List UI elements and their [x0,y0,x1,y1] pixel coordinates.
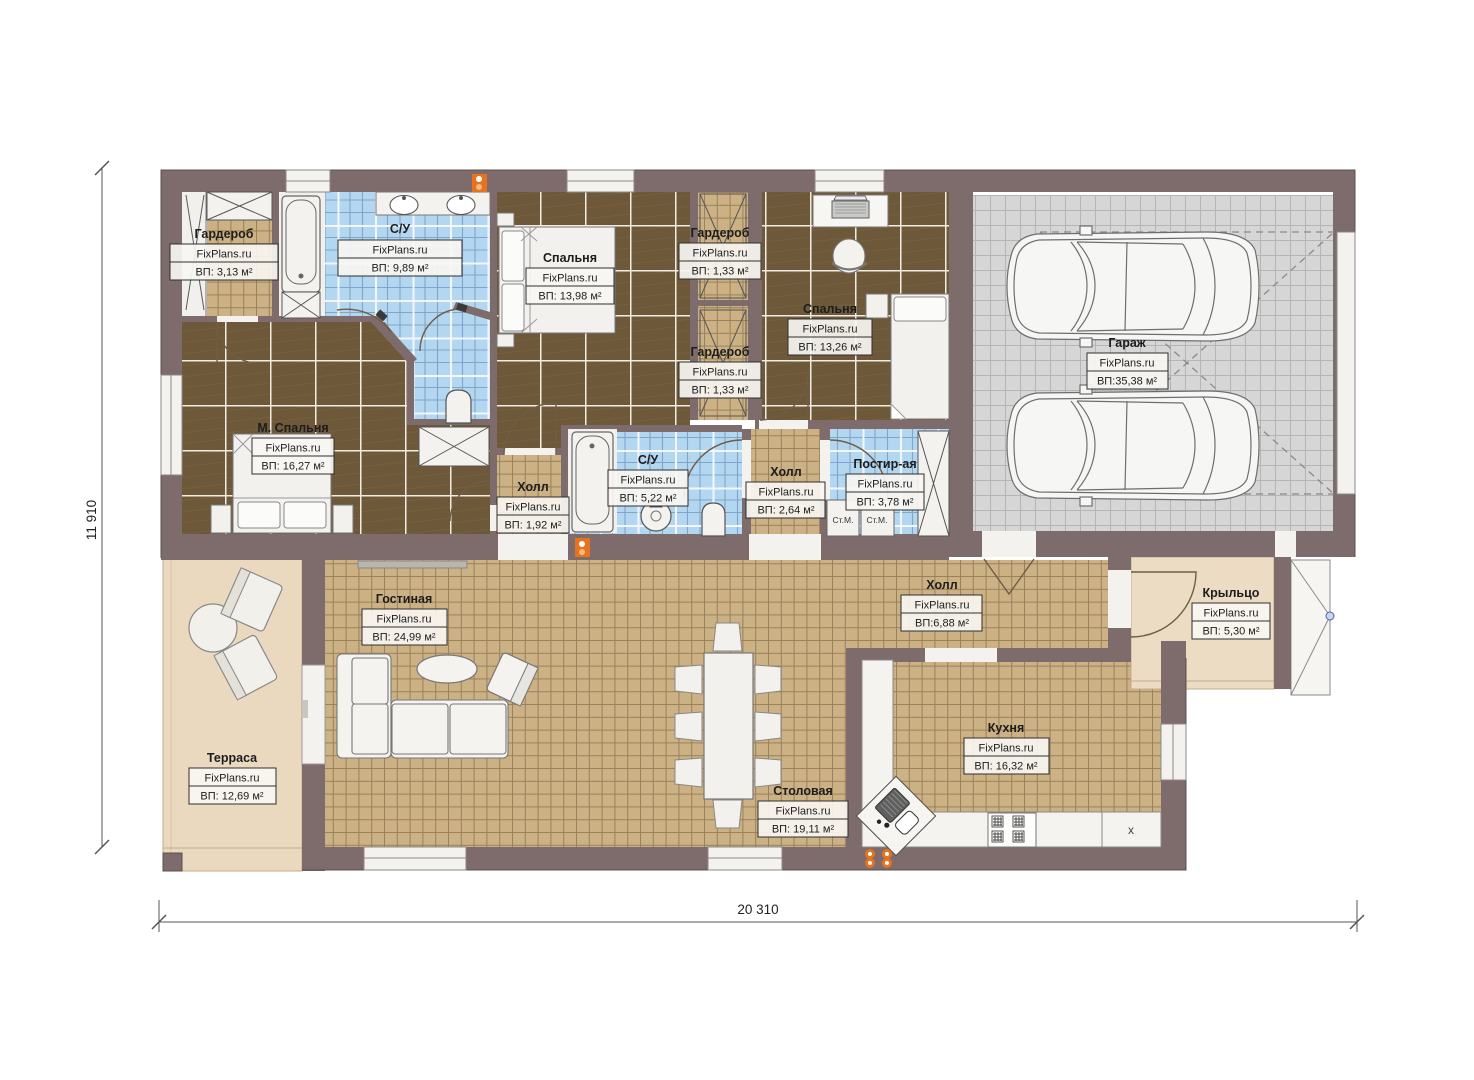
svg-text:Спальня: Спальня [803,302,857,316]
svg-text:Крыльцо: Крыльцо [1203,586,1260,600]
svg-text:ВП: 2,64 м²: ВП: 2,64 м² [757,505,814,517]
svg-text:FixPlans.ru: FixPlans.ru [857,479,912,491]
svg-text:ВП:35,38 м²: ВП:35,38 м² [1097,376,1157,388]
svg-text:Гардероб: Гардероб [690,345,749,359]
svg-text:Гараж: Гараж [1108,336,1145,350]
svg-text:ВП: 24,99 м²: ВП: 24,99 м² [372,632,436,644]
svg-text:FixPlans.ru: FixPlans.ru [196,249,251,261]
svg-text:ВП: 1,92 м²: ВП: 1,92 м² [504,520,561,532]
svg-text:ВП: 1,33 м²: ВП: 1,33 м² [691,266,748,278]
svg-text:Гардероб: Гардероб [690,226,749,240]
svg-text:Кухня: Кухня [988,721,1025,735]
svg-text:FixPlans.ru: FixPlans.ru [1099,358,1154,370]
svg-text:Спальня: Спальня [543,251,597,265]
svg-text:ВП: 12,69 м²: ВП: 12,69 м² [200,791,264,803]
svg-text:FixPlans.ru: FixPlans.ru [914,600,969,612]
svg-text:ВП: 5,30 м²: ВП: 5,30 м² [1202,626,1259,638]
svg-text:FixPlans.ru: FixPlans.ru [758,487,813,499]
svg-text:Постир-ая: Постир-ая [853,457,916,471]
svg-text:11 910: 11 910 [84,500,99,540]
svg-text:FixPlans.ru: FixPlans.ru [692,367,747,379]
svg-text:FixPlans.ru: FixPlans.ru [204,773,259,785]
svg-text:Гардероб: Гардероб [194,227,253,241]
svg-text:ВП: 1,33 м²: ВП: 1,33 м² [691,385,748,397]
svg-text:ВП: 3,13 м²: ВП: 3,13 м² [195,267,252,279]
svg-text:20 310: 20 310 [737,902,778,917]
svg-text:FixPlans.ru: FixPlans.ru [802,324,857,336]
svg-text:ВП: 16,32 м²: ВП: 16,32 м² [974,761,1038,773]
svg-text:Гостиная: Гостиная [376,592,433,606]
svg-text:ВП: 5,22 м²: ВП: 5,22 м² [619,493,676,505]
svg-text:FixPlans.ru: FixPlans.ru [505,502,560,514]
svg-text:FixPlans.ru: FixPlans.ru [620,475,675,487]
svg-text:ВП: 13,98 м²: ВП: 13,98 м² [538,291,602,303]
svg-text:x: x [1128,823,1134,837]
svg-text:ВП: 16,27 м²: ВП: 16,27 м² [261,461,325,473]
svg-text:FixPlans.ru: FixPlans.ru [692,248,747,260]
svg-text:ВП:6,88 м²: ВП:6,88 м² [915,618,969,630]
svg-text:ВП: 19,11 м²: ВП: 19,11 м² [772,824,835,836]
svg-text:FixPlans.ru: FixPlans.ru [978,743,1033,755]
svg-text:FixPlans.ru: FixPlans.ru [775,806,830,818]
svg-text:Холл: Холл [926,578,957,592]
svg-text:ВП: 13,26 м²: ВП: 13,26 м² [798,342,862,354]
svg-text:С/У: С/У [638,453,659,467]
svg-text:FixPlans.ru: FixPlans.ru [542,273,597,285]
svg-text:Ст.М.: Ст.М. [833,515,854,525]
svg-text:С/У: С/У [390,222,411,236]
svg-text:Терраса: Терраса [207,751,258,765]
svg-text:Холл: Холл [517,480,548,494]
svg-text:М. Спальня: М. Спальня [257,421,328,435]
svg-text:Ст.М.: Ст.М. [867,515,888,525]
svg-text:FixPlans.ru: FixPlans.ru [265,443,320,455]
svg-text:Холл: Холл [770,465,801,479]
svg-text:ВП: 9,89 м²: ВП: 9,89 м² [371,263,428,275]
svg-text:FixPlans.ru: FixPlans.ru [372,245,427,257]
svg-text:FixPlans.ru: FixPlans.ru [376,614,431,626]
svg-text:FixPlans.ru: FixPlans.ru [1203,608,1258,620]
svg-text:Столовая: Столовая [773,784,833,798]
svg-text:ВП: 3,78 м²: ВП: 3,78 м² [856,497,913,509]
